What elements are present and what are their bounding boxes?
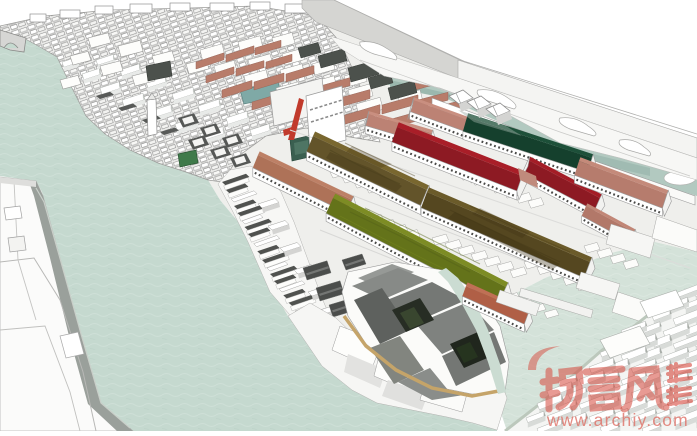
svg-text:www.archiy.com: www.archiy.com xyxy=(546,410,689,430)
